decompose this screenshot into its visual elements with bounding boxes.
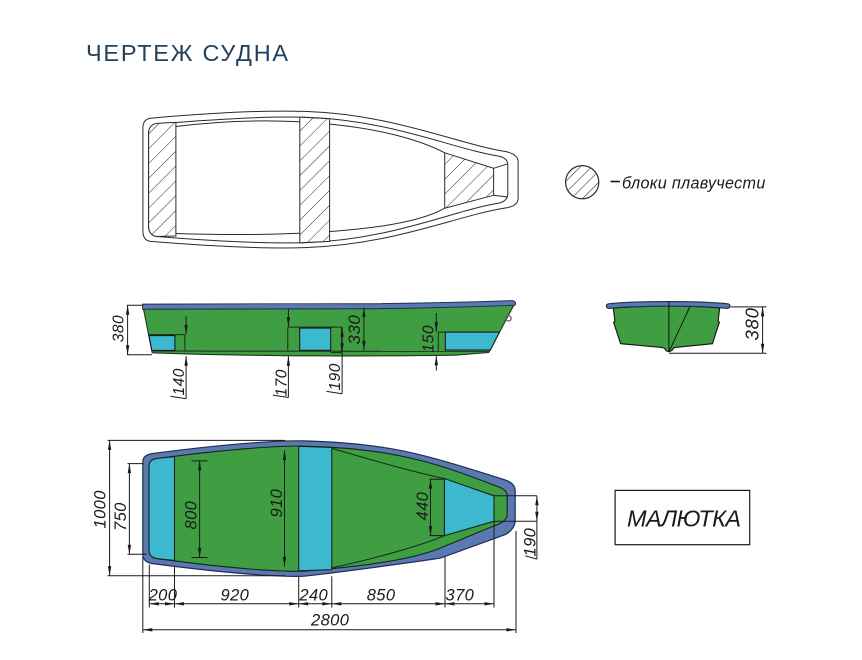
svg-text:блоки плавучести: блоки плавучести (622, 174, 766, 192)
svg-text:750: 750 (112, 502, 130, 531)
svg-text:380: 380 (111, 315, 128, 342)
svg-text:910: 910 (268, 488, 286, 517)
svg-text:190: 190 (327, 363, 344, 390)
svg-text:190: 190 (522, 527, 540, 556)
svg-text:440: 440 (414, 491, 432, 520)
svg-text:170: 170 (273, 369, 290, 396)
svg-text:200: 200 (148, 587, 178, 605)
svg-text:140: 140 (171, 368, 188, 395)
svg-text:380: 380 (742, 307, 763, 340)
svg-text:850: 850 (367, 587, 396, 605)
svg-text:800: 800 (183, 500, 201, 529)
svg-text:920: 920 (221, 587, 250, 605)
svg-text:1000: 1000 (92, 490, 110, 529)
svg-text:ЧЕРТЕЖ СУДНА: ЧЕРТЕЖ СУДНА (86, 40, 290, 66)
svg-text:150: 150 (420, 325, 437, 352)
svg-text:МАЛЮТКА: МАЛЮТКА (627, 506, 741, 532)
svg-text:330: 330 (345, 315, 364, 345)
svg-text:2800: 2800 (310, 612, 350, 630)
svg-text:370: 370 (446, 587, 475, 605)
svg-text:240: 240 (298, 587, 328, 605)
